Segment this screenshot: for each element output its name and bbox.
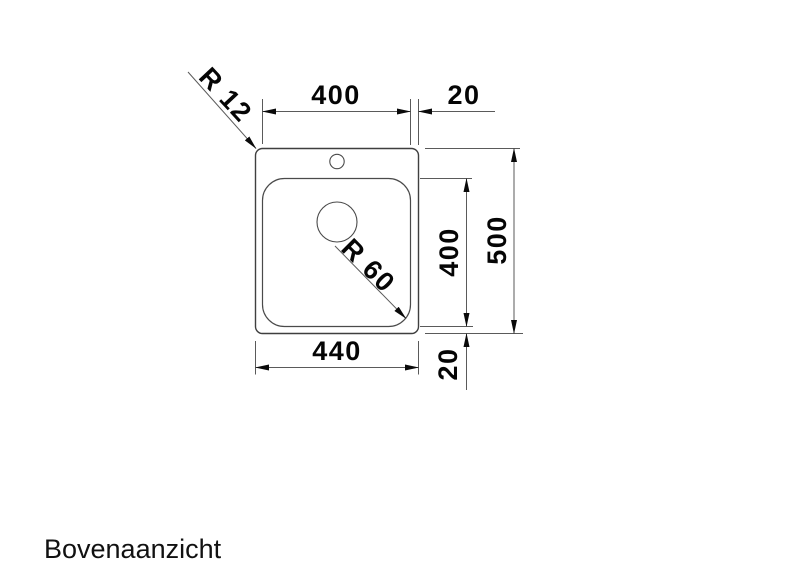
view-caption: Bovenaanzicht: [44, 534, 221, 565]
dim-label-total-width: 440: [312, 336, 362, 366]
sink-top-view-drawing: 400 20 400 500 20 440 R 12: [0, 0, 800, 582]
top-dimensions: 400 20: [263, 80, 496, 145]
dim-label-bowl-height: 400: [434, 227, 464, 277]
dim-label-right-margin: 20: [447, 80, 480, 110]
bottom-dimensions: 440: [256, 336, 419, 375]
dim-label-total-height: 500: [482, 215, 512, 265]
right-dimensions: 400 500 20: [420, 149, 523, 391]
dim-label-bowl-width: 400: [311, 80, 361, 110]
dim-label-bottom-margin: 20: [433, 347, 463, 380]
dim-label-outer-radius: R 12: [193, 62, 258, 129]
drawing-page: 400 20 400 500 20 440 R 12: [0, 0, 800, 582]
